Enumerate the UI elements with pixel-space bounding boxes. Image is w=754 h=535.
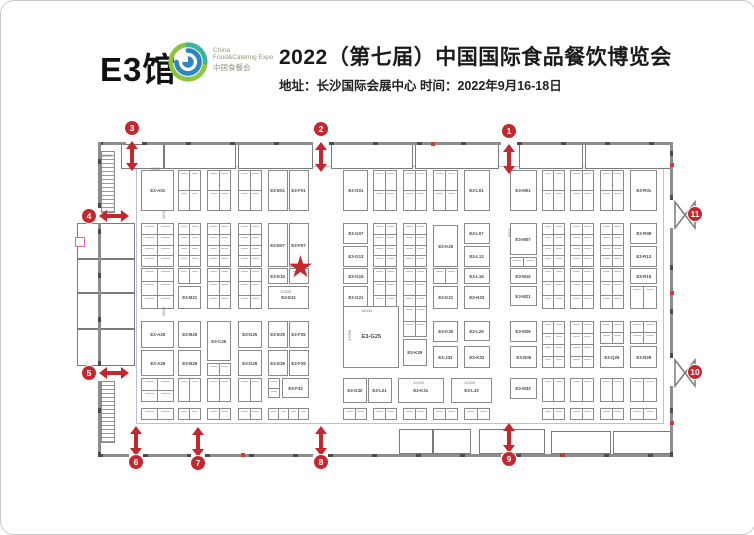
dimension-label: 6000 (151, 166, 160, 171)
entrance-arrow (106, 371, 122, 375)
booth-cell (478, 409, 490, 419)
booth-cell (299, 409, 308, 419)
booth-cell (571, 282, 582, 294)
booth-cell-group (207, 378, 231, 402)
booth: E3-B21 (178, 286, 201, 309)
booth-cell (220, 171, 231, 190)
booth-cell (613, 191, 624, 210)
booth-cell (208, 409, 219, 419)
booth-cell-group (570, 223, 594, 267)
booth-cell-group (570, 170, 594, 211)
booth-cell (251, 269, 262, 281)
booth-cell (220, 296, 231, 308)
booth-cell-group (542, 408, 565, 420)
booth-cell (251, 171, 262, 190)
booth-label: E3-C25 (212, 339, 227, 344)
booth-cell-group (600, 170, 624, 211)
facility-marker (75, 237, 85, 247)
booth-cell (583, 224, 594, 234)
booth-cell (554, 409, 564, 419)
booth: E3-A25 (141, 321, 174, 348)
booth-label: E3-L07 (470, 231, 484, 236)
booth-cell (601, 246, 612, 256)
entrance-arrow (319, 433, 323, 449)
booth-cell (446, 409, 457, 419)
booth-cell (601, 171, 612, 190)
booth-cell-group (542, 268, 565, 309)
booth-cell (601, 322, 612, 332)
booth-cell-group (600, 321, 624, 344)
booth-cell (386, 269, 397, 281)
booth: E3-K21 (433, 286, 458, 309)
booth-cell (613, 224, 624, 234)
booth-cell-group (403, 306, 427, 337)
booth-cell (158, 224, 173, 234)
booth-cell (571, 322, 582, 333)
booth-label: E3-L29 (470, 329, 484, 334)
wall-segment (329, 142, 501, 145)
entrance-arrow (196, 434, 200, 450)
booth-cell-group (570, 408, 594, 420)
booth: E3-K29 (403, 339, 427, 366)
booth-cell (190, 191, 200, 210)
booth-cell-group (403, 268, 427, 309)
entrance-badge: 2 (314, 122, 328, 136)
booth-label: E3-G07 (348, 231, 363, 236)
wall-segment (98, 223, 101, 366)
booth-cell (524, 258, 536, 266)
booth: E3-L21 (368, 378, 392, 403)
booth-label: E3-R13 (636, 254, 651, 259)
booth: E3-C25 (207, 321, 231, 361)
booth-label: E3-D29 (243, 361, 258, 366)
booth-cell-group (600, 223, 624, 267)
wall-segment (143, 454, 191, 457)
booth-cell-group (433, 408, 458, 420)
booth-label: E3-G21 (348, 295, 363, 300)
booth-cell (571, 235, 582, 245)
booth-cell (543, 357, 553, 368)
booth-cell-group (178, 268, 201, 284)
booth: E3-F29 (289, 350, 309, 376)
booth-cell (279, 409, 288, 419)
booth-label: E3-F25 (292, 332, 306, 337)
booth-label: E3-G15 (348, 274, 363, 279)
door-mark (241, 453, 245, 457)
booth-cell (404, 235, 415, 245)
booth-cell (583, 334, 594, 345)
entrance-badge: 6 (129, 455, 143, 469)
booth-cell (601, 269, 612, 281)
booth-cell (554, 224, 564, 234)
booth-cell-group (630, 286, 657, 309)
booth-cell (269, 379, 279, 388)
wall-segment (328, 454, 501, 457)
booth: E3-F33 (282, 378, 309, 398)
booth-cell (583, 357, 594, 368)
booth-cell (142, 409, 157, 419)
booth-cell (613, 235, 624, 245)
booth: E3-M21 (510, 286, 537, 306)
booth-cell (208, 191, 219, 210)
booth-cell (190, 409, 200, 419)
door-mark (670, 163, 674, 167)
booth-cell (374, 282, 385, 294)
booth-cell (220, 379, 231, 401)
booth-cell (404, 191, 415, 210)
booth-cell (416, 409, 427, 419)
booth-cell (543, 282, 553, 294)
booth-cell (208, 256, 219, 266)
booth-cell (142, 269, 157, 281)
booth-cell (208, 269, 219, 281)
booth-cell (251, 256, 262, 266)
booth-cell (239, 191, 250, 210)
booth-cell (158, 409, 173, 419)
booth-label: E3-M15 (516, 274, 531, 279)
wall-segment (98, 381, 101, 457)
booth-cell (613, 269, 624, 281)
booth-cell (583, 256, 594, 266)
booth-cell-group (207, 408, 231, 420)
booth-cell (404, 269, 415, 281)
booth-cell-group (373, 170, 397, 211)
booth: E3-R15 (630, 268, 657, 284)
booth-cell-group (510, 257, 537, 267)
booth-label: E3-F29 (292, 361, 306, 366)
booth-cell (220, 235, 231, 245)
entrance-arrow (106, 214, 122, 218)
service-room (77, 259, 135, 293)
booth-cell (571, 409, 582, 419)
dimension-label: 4500 (161, 210, 166, 219)
booth-label: E3-L01 (470, 188, 484, 193)
booth-cell (416, 269, 427, 281)
booth-cell-group (403, 408, 427, 420)
booth-label: E3-Q29 (604, 355, 619, 360)
booth-cell (142, 256, 157, 266)
booth-cell (208, 282, 219, 294)
booth-label: E3-A25 (150, 332, 165, 337)
booth-cell (613, 246, 624, 256)
booth: E3-K30 (433, 321, 458, 342)
booth-cell-group (268, 378, 280, 398)
booth-cell (251, 282, 262, 294)
booth: E3-L29 (464, 321, 490, 341)
booth-cell (344, 409, 355, 419)
booth-cell (583, 191, 594, 210)
booth: E3-E07 (268, 223, 288, 267)
entrance-arrow (134, 433, 138, 449)
booth-cell-group (178, 170, 201, 211)
booth-cell (554, 379, 564, 401)
booth-cell (386, 246, 397, 256)
booth-cell (404, 246, 415, 256)
booth-cell (416, 224, 427, 234)
booth-cell-group (178, 378, 201, 402)
booth: E3-B25 (178, 321, 201, 348)
booth-cell (374, 256, 385, 266)
booth-cell (239, 246, 250, 256)
booth-cell (543, 296, 553, 308)
booth-cell (511, 258, 523, 266)
booth-cell (158, 282, 173, 294)
booth-cell (571, 191, 582, 210)
booth-cell (179, 224, 189, 234)
booth-cell (220, 256, 231, 266)
booth: E3-F25 (289, 321, 309, 348)
booth: E3-F01 (289, 170, 309, 211)
door-mark (670, 291, 674, 295)
wall-segment (670, 142, 673, 200)
booth-cell (583, 345, 594, 356)
booth-cell (404, 256, 415, 266)
booth-cell (434, 409, 445, 419)
booth-cell (239, 379, 250, 401)
booth: E3-K33 (464, 346, 490, 368)
booth-label: E3-A29 (150, 361, 165, 366)
booth-cell (644, 333, 656, 343)
floor-plan-page: E3馆 China Food&Catering Expo 中国食餐会 2022（… (0, 0, 754, 535)
booth-cell (613, 256, 624, 266)
booth-cell (416, 282, 427, 294)
booth-label: E3-K33 (470, 355, 485, 360)
booth-cell (416, 171, 427, 190)
booth-cell (434, 269, 445, 283)
booth-cell (554, 296, 564, 308)
booth-cell (601, 235, 612, 245)
booth-cell (543, 224, 553, 234)
service-room (585, 144, 671, 169)
booth-cell (142, 379, 157, 390)
booth-cell (386, 171, 397, 190)
booth-cell (631, 322, 643, 332)
booth-cell (179, 269, 189, 283)
booth-cell (416, 307, 427, 321)
booth-cell (179, 246, 189, 256)
service-room (164, 144, 236, 169)
service-room (551, 431, 611, 454)
service-room (415, 144, 499, 169)
booth-cell-group (343, 408, 367, 420)
booth-cell (543, 269, 553, 281)
booth-cell (269, 389, 279, 398)
booth-cell (386, 409, 397, 419)
booth-cell (142, 296, 157, 308)
booth-cell (289, 409, 298, 419)
entrance-arrow (507, 151, 511, 167)
booth: E3-G30 (343, 378, 367, 403)
booth-cell (239, 235, 250, 245)
booth-cell (142, 391, 157, 402)
booth-cell (208, 246, 219, 256)
booth-cell (251, 379, 262, 401)
booth-cell (190, 379, 200, 401)
booth-cell (416, 235, 427, 245)
service-room (519, 144, 583, 169)
booth-cell (571, 296, 582, 308)
booth-cell (142, 246, 157, 256)
entrance-arrow (319, 149, 323, 165)
booth-cell (269, 409, 278, 419)
entrance-badge: 9 (502, 452, 516, 466)
booth-cell (239, 296, 250, 308)
booth-cell (554, 357, 564, 368)
booth-cell-group (141, 223, 174, 267)
booth-cell-group (600, 378, 624, 402)
booth-label: E3-B21 (182, 295, 197, 300)
booth-cell (571, 256, 582, 266)
booth-cell (631, 287, 643, 308)
entrance-badge: 1 (502, 124, 516, 138)
booth-cell (179, 256, 189, 266)
booth-cell (554, 235, 564, 245)
wall-segment (98, 454, 129, 457)
booth-label: E3-A01 (150, 188, 165, 193)
booth-label: E3-B25 (182, 332, 197, 337)
booth-cell (220, 364, 231, 375)
booth-label: E3-E15 (271, 274, 286, 279)
booth-cell (251, 246, 262, 256)
booth-cell (613, 171, 624, 190)
booth-cell (434, 171, 445, 190)
booth: E3-E15 (268, 268, 288, 284)
booth-cell-group (630, 321, 657, 344)
floor-plan: E3-A01E3-E01E3-F01E3-G01E3-L01E3-M01E3-R… (1, 1, 754, 534)
booth-cell (601, 224, 612, 234)
booth-cell-group (403, 170, 427, 211)
booth-cell-group (433, 268, 458, 284)
booth-cell (239, 409, 250, 419)
booth-cell (374, 269, 385, 281)
booth-cell (404, 409, 415, 419)
booth-cell-group (570, 321, 594, 368)
booth-cell (158, 269, 173, 281)
booth-cell (179, 409, 189, 419)
booth-cell (583, 282, 594, 294)
booth-cell (613, 333, 624, 343)
booth: E3-R29 (630, 346, 657, 368)
booth-cell-group (373, 408, 397, 420)
booth-cell (208, 235, 219, 245)
booth-cell (251, 409, 262, 419)
booth-cell (208, 171, 219, 190)
booth-cell (543, 345, 553, 356)
booth: E3-K26 (433, 225, 458, 267)
booth-cell (374, 409, 385, 419)
booth: E3-M07 (510, 223, 537, 255)
service-room (77, 329, 135, 366)
booth-cell-group (433, 170, 458, 211)
booth-cell (190, 246, 200, 256)
booth: E3-N05 (510, 346, 537, 368)
booth-label: E3-E21 (281, 295, 296, 300)
booth-label: E3-R15 (636, 274, 651, 279)
booth-cell (601, 296, 612, 308)
booth-cell (571, 345, 582, 356)
booth-label: E3-M29 (516, 329, 531, 334)
booth-label: E3-G25 (361, 334, 381, 340)
service-room (613, 431, 671, 454)
booth-cell (631, 409, 643, 419)
booth-cell (386, 191, 397, 210)
service-room (399, 429, 433, 454)
entrance-badge: 8 (314, 455, 328, 469)
booth-cell (179, 235, 189, 245)
service-room (433, 429, 471, 454)
booth-cell (644, 379, 656, 401)
entrance-badge: 10 (688, 365, 702, 379)
booth-cell-group (207, 363, 231, 376)
booth-cell (644, 322, 656, 332)
booth-cell (251, 296, 262, 308)
booth-cell (416, 246, 427, 256)
booth-cell-group (373, 268, 397, 309)
booth-label: E3-L15 (470, 274, 484, 279)
entrance-badge: 7 (191, 456, 205, 470)
booth-cell-group (207, 223, 231, 267)
booth-cell (404, 307, 415, 321)
dimension-label: 9000 (507, 228, 512, 237)
booth: E3-L15 (464, 268, 490, 284)
booth-cell (142, 235, 157, 245)
booth-label: E3-E07 (271, 243, 286, 248)
booth-cell-group (178, 408, 201, 420)
booth-cell (631, 333, 643, 343)
booth: E3-D25 (238, 321, 262, 348)
booth-cell-group (600, 268, 624, 309)
booth-cell (631, 379, 643, 401)
booth-cell (554, 345, 564, 356)
dimension-label: 17000 (347, 330, 352, 341)
booth-cell-group (570, 378, 594, 402)
booth-cell (465, 409, 477, 419)
booth-cell (554, 191, 564, 210)
booth-cell (613, 409, 624, 419)
booth-cell (554, 256, 564, 266)
door-mark (431, 142, 435, 146)
booth-cell (220, 409, 231, 419)
stairs-hatch (101, 151, 115, 213)
booth-cell (583, 409, 594, 419)
booth-cell (158, 379, 173, 390)
booth-cell (554, 334, 564, 345)
booth-cell (571, 246, 582, 256)
booth-cell (554, 269, 564, 281)
booth-cell (601, 191, 612, 210)
booth-cell-group (542, 223, 565, 267)
booth-label: E3-L13 (470, 254, 484, 259)
booth-cell (601, 333, 612, 343)
booth: E3-G15 (343, 268, 368, 284)
booth-cell-group (403, 223, 427, 267)
booth-cell (220, 269, 231, 281)
booth-cell (601, 379, 612, 401)
booth-cell-group (238, 170, 262, 211)
booth: E3-A01 (141, 170, 174, 211)
wall-segment (142, 142, 313, 145)
entrance-badge: 4 (82, 209, 96, 223)
booth-cell (239, 282, 250, 294)
booth-cell (179, 379, 189, 401)
booth-label: E3-L33 (464, 388, 478, 393)
wall-segment (205, 454, 313, 457)
booth-cell-group (238, 268, 262, 309)
service-room (331, 144, 413, 169)
wall-segment (98, 142, 126, 145)
booth-label: E3-R01 (636, 188, 651, 193)
booth-cell (208, 364, 219, 375)
